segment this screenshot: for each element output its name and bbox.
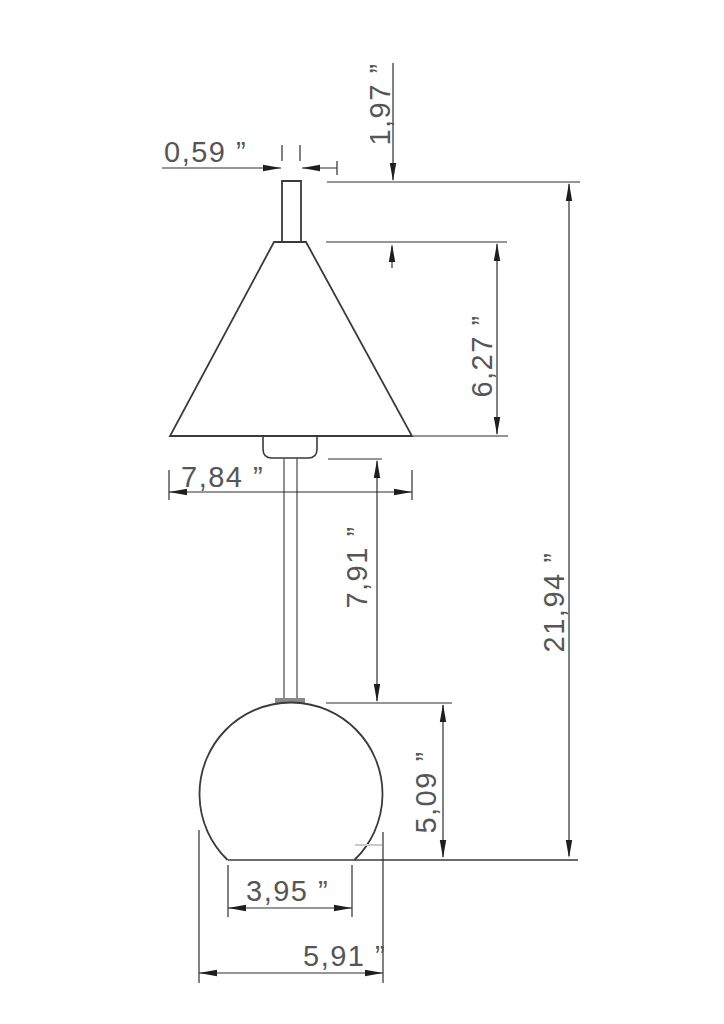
arrow-right-icon xyxy=(394,489,412,495)
arrow-up-icon xyxy=(440,704,446,722)
dim-shade-diameter: 7,84 ” xyxy=(169,461,412,500)
dim-base-diameter-label: 5,91 ” xyxy=(303,940,386,972)
dim-finial-width: 0,59 ” xyxy=(162,136,337,175)
arrow-left-icon xyxy=(302,165,320,171)
dim-finial-width-label: 0,59 ” xyxy=(164,136,247,168)
dim-stem-length: 7,91 ” xyxy=(326,459,452,703)
finial-rod-outline xyxy=(282,181,301,243)
dim-base-height: 5,09 ” xyxy=(410,704,446,858)
dim-total-height: 21,94 ” xyxy=(538,183,572,858)
arrow-down-icon xyxy=(390,163,396,181)
dim-shade-height-label: 6,27 ” xyxy=(466,314,498,397)
dim-total-height-label: 21,94 ” xyxy=(538,552,570,653)
sphere-base-outline xyxy=(200,703,383,860)
socket-outline xyxy=(263,437,317,458)
arrow-left-icon xyxy=(199,970,217,976)
dim-base-flat-width: 3,95 ” xyxy=(228,865,352,917)
arrow-up-icon xyxy=(374,460,380,478)
cone-shade-outline xyxy=(170,242,412,436)
arrow-down-icon xyxy=(494,417,500,435)
arrow-down-icon xyxy=(440,840,446,858)
lamp-outline xyxy=(170,181,578,860)
dim-shade-height: 6,27 ” xyxy=(326,242,508,436)
dim-shade-diameter-label: 7,84 ” xyxy=(181,461,264,493)
arrow-down-icon xyxy=(566,840,572,858)
arrow-up-icon xyxy=(566,183,572,201)
dim-base-height-label: 5,09 ” xyxy=(410,750,442,833)
dim-finial-height: 1,97 ” xyxy=(327,62,580,268)
arrow-down-icon xyxy=(374,684,380,702)
lamp-technical-drawing: 0,59 ” 1,97 ” 6,27 ” xyxy=(0,0,724,1024)
dim-finial-height-label: 1,97 ” xyxy=(364,62,396,145)
dim-stem-length-label: 7,91 ” xyxy=(341,525,373,608)
arrow-up-icon xyxy=(389,244,395,262)
dim-base-flat-width-label: 3,95 ” xyxy=(246,875,329,907)
arrow-up-icon xyxy=(494,243,500,261)
dimension-drawing-page: 0,59 ” 1,97 ” 6,27 ” xyxy=(0,0,724,1024)
arrow-right-icon xyxy=(263,165,281,171)
arrow-right-icon xyxy=(334,905,352,911)
arrow-left-icon xyxy=(228,905,246,911)
